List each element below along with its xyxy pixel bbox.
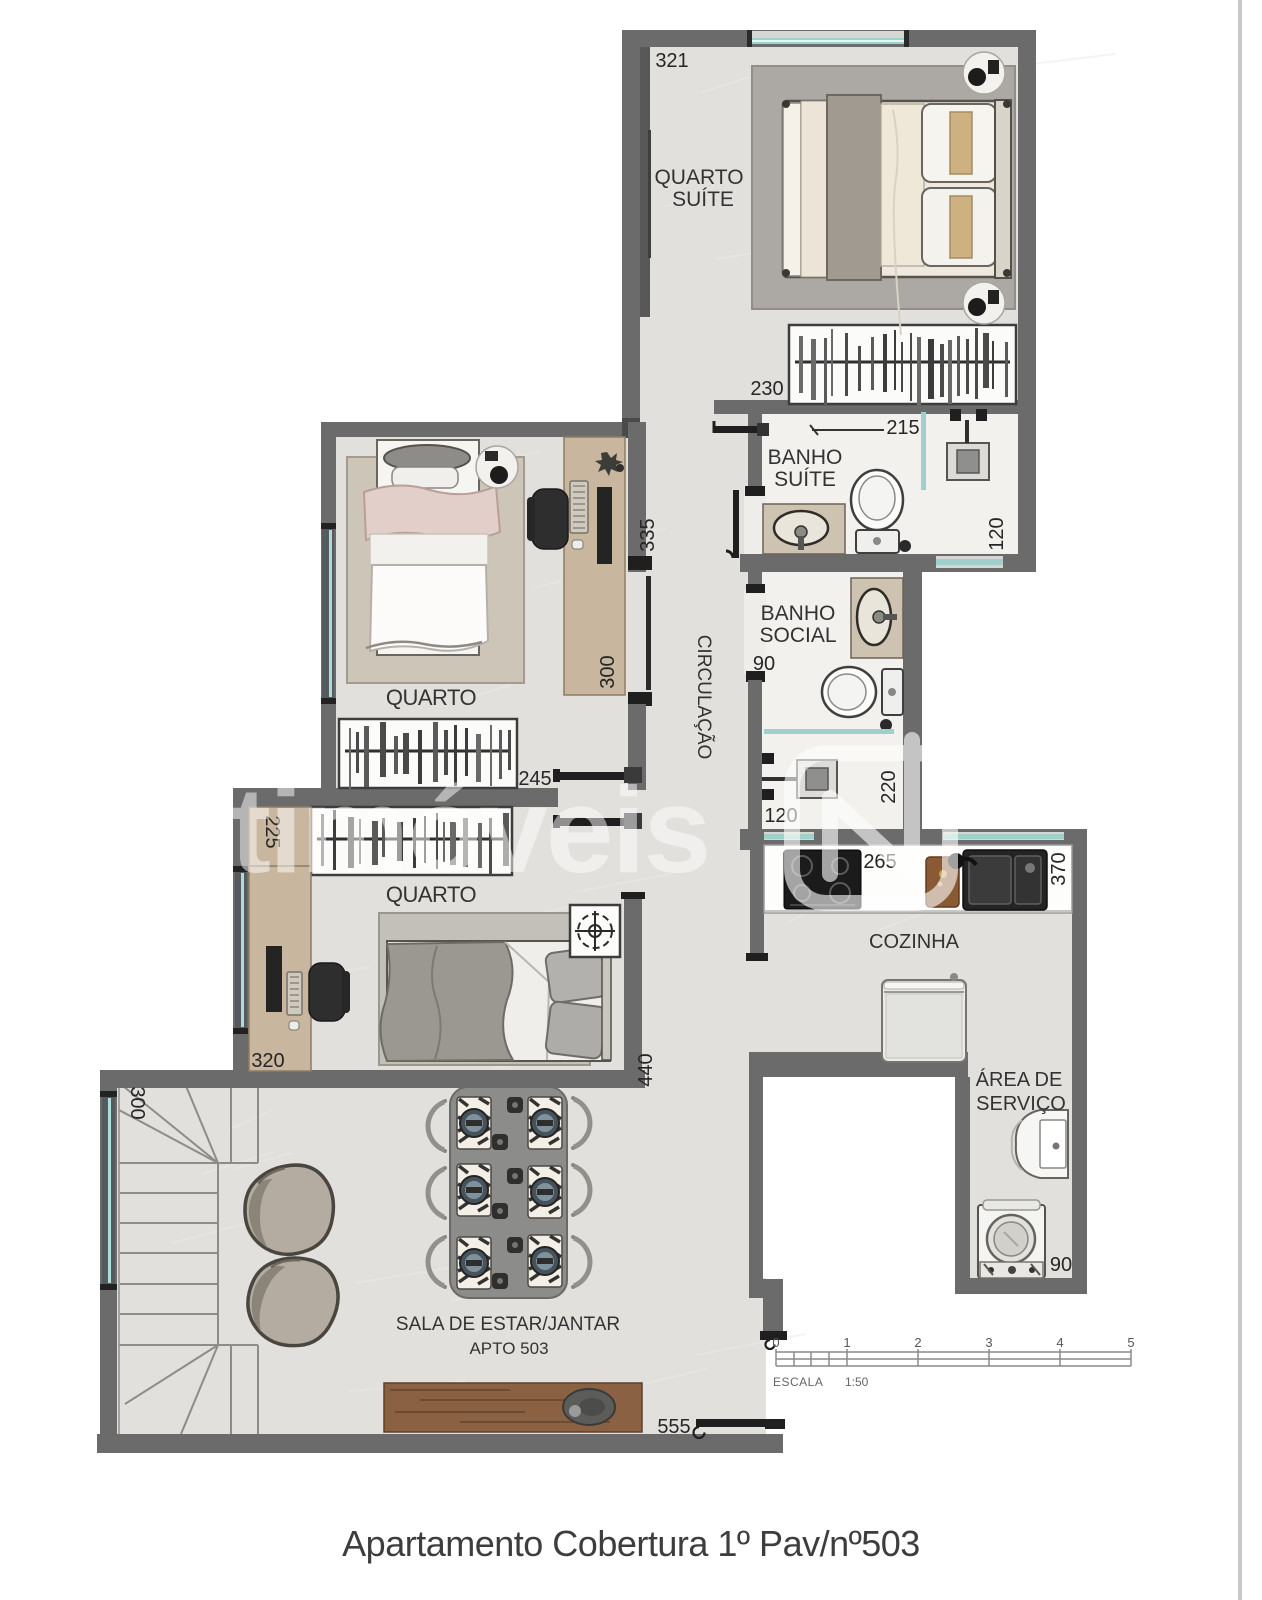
svg-text:300: 300 [597, 655, 619, 688]
svg-text:555: 555 [657, 1416, 690, 1438]
svg-text:SERVIÇO: SERVIÇO [976, 1093, 1066, 1115]
svg-text:SOCIAL: SOCIAL [759, 624, 836, 647]
svg-text:QUARTO: QUARTO [654, 166, 743, 189]
svg-text:SUÍTE: SUÍTE [672, 188, 734, 211]
svg-text:5: 5 [1127, 1335, 1134, 1350]
svg-text:4: 4 [1056, 1335, 1063, 1350]
svg-text:Apartamento Cobertura 1º Pav/n: Apartamento Cobertura 1º Pav/nº503 [342, 1523, 920, 1564]
svg-text:QUARTO: QUARTO [386, 685, 477, 710]
svg-text:1:50: 1:50 [845, 1375, 869, 1389]
svg-text:335: 335 [637, 518, 659, 551]
svg-text:1: 1 [843, 1335, 850, 1350]
svg-text:BANHO: BANHO [761, 602, 836, 625]
svg-text:300: 300 [126, 1086, 148, 1119]
svg-text:90: 90 [753, 653, 775, 675]
svg-text:120: 120 [986, 517, 1008, 550]
svg-text:220: 220 [878, 770, 900, 803]
svg-text:APTO 503: APTO 503 [469, 1339, 548, 1358]
svg-text:440: 440 [635, 1053, 657, 1086]
svg-text:CIRCULAÇÃO: CIRCULAÇÃO [693, 635, 715, 760]
svg-text:SALA DE ESTAR/JANTAR: SALA DE ESTAR/JANTAR [396, 1314, 620, 1335]
svg-text:0: 0 [772, 1335, 779, 1350]
svg-text:321: 321 [655, 50, 688, 72]
svg-text:BANHO: BANHO [768, 446, 843, 469]
svg-text:3: 3 [985, 1335, 992, 1350]
svg-text:netimóveis: netimóveis [92, 762, 709, 898]
svg-text:90: 90 [1050, 1254, 1072, 1276]
svg-text:2: 2 [914, 1335, 921, 1350]
svg-text:ÁREA DE: ÁREA DE [976, 1068, 1063, 1091]
svg-text:ESCALA: ESCALA [773, 1375, 823, 1389]
svg-text:COZINHA: COZINHA [869, 931, 960, 953]
svg-text:SUÍTE: SUÍTE [774, 468, 836, 491]
svg-text:370: 370 [1048, 852, 1070, 885]
svg-text:215: 215 [886, 417, 919, 439]
svg-text:320: 320 [251, 1050, 284, 1072]
svg-text:230: 230 [750, 378, 783, 400]
